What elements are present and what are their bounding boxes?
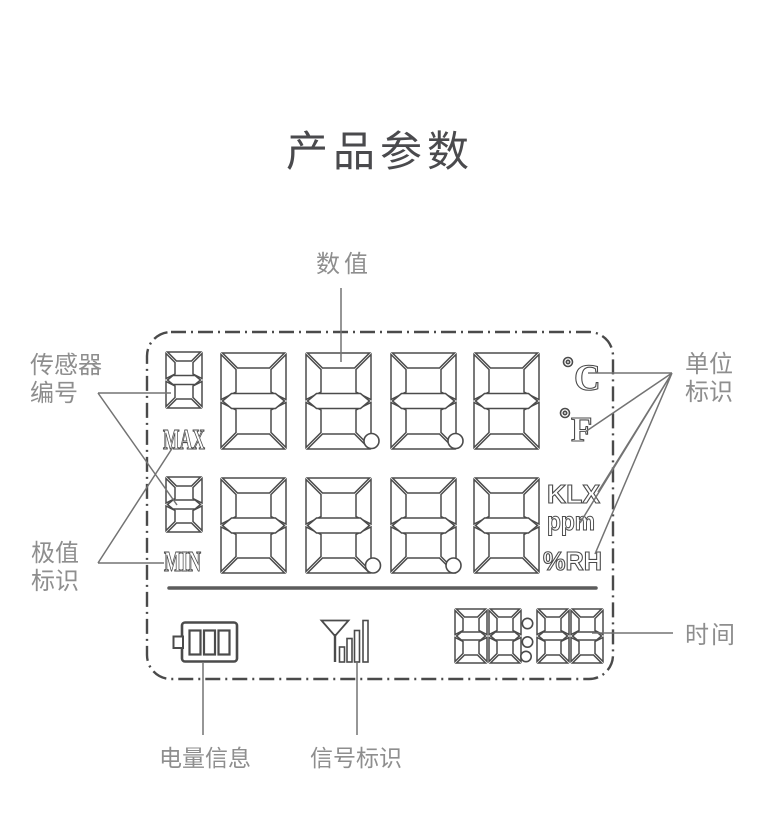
unit-annotation: 单位 标识 xyxy=(685,351,733,407)
extreme-line2: 标识 xyxy=(31,568,79,596)
sensor-number-annotation: 传感器 编号 xyxy=(30,352,102,408)
sensor-digit-row1 xyxy=(166,352,202,408)
colon-icon xyxy=(521,618,533,661)
unit-line2: 标识 xyxy=(685,379,733,407)
signal-icon xyxy=(322,621,369,663)
decimal-point xyxy=(366,558,381,573)
decimal-point xyxy=(364,434,379,449)
extreme-leader-lines xyxy=(98,447,173,563)
battery-annotation: 电量信息 xyxy=(159,744,251,772)
row2-digit-4 xyxy=(474,478,539,573)
row1-digit-3 xyxy=(391,353,456,449)
unit-klx: KLX xyxy=(547,479,601,509)
sensor-number-line2: 编号 xyxy=(30,380,102,408)
row2-digit-3 xyxy=(391,478,456,573)
battery-icon xyxy=(174,623,238,662)
lcd-digits xyxy=(166,352,603,663)
unit-celsius: C xyxy=(574,358,601,399)
degree-celsius-icon xyxy=(564,358,573,367)
min-tag: MIN xyxy=(164,547,201,578)
degree-fahrenheit-icon xyxy=(561,409,570,418)
extreme-annotation: 极值 标识 xyxy=(31,540,79,596)
row1-digit-2 xyxy=(306,353,371,449)
signal-annotation: 信号标识 xyxy=(310,744,402,772)
extreme-line1: 极值 xyxy=(31,540,79,568)
time-digit-3 xyxy=(537,609,569,663)
sensor-number-line1: 传感器 xyxy=(30,352,102,380)
unit-line1: 单位 xyxy=(685,351,733,379)
time-digit-1 xyxy=(455,609,487,663)
row2-digit-2 xyxy=(306,478,371,573)
time-annotation: 时间 xyxy=(685,622,737,650)
decimal-point xyxy=(446,558,461,573)
row1-digit-4 xyxy=(474,353,539,449)
decimal-point xyxy=(448,434,463,449)
time-digit-4 xyxy=(571,609,603,663)
time-digit-2 xyxy=(489,609,521,663)
lcd-diagram: MAX MIN C F KLX ppm %RH xyxy=(0,0,760,833)
value-annotation: 数值 xyxy=(316,251,372,279)
row1-digit-1 xyxy=(221,353,286,449)
row2-digit-1 xyxy=(221,478,286,573)
sensor-digit-row2 xyxy=(166,477,202,532)
unit-rh: %RH xyxy=(543,546,602,576)
